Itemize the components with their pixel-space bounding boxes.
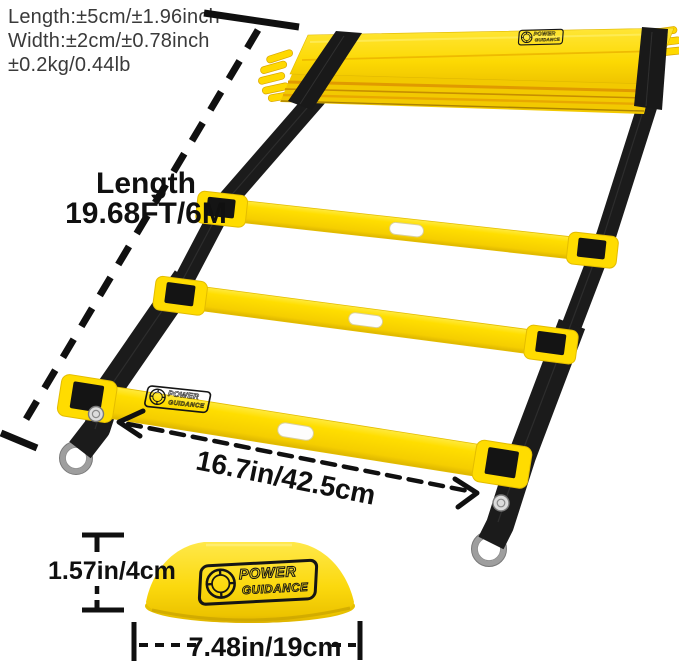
cone-height-label: 1.57in/4cm bbox=[48, 557, 176, 585]
rung-2 bbox=[152, 276, 579, 365]
product-dimension-diagram: Length:±5cm/±1.96inch Width:±2cm/±0.78in… bbox=[0, 0, 679, 663]
length-dimension-line bbox=[1, 13, 299, 448]
tolerance-specs: Length:±5cm/±1.96inch Width:±2cm/±0.78in… bbox=[8, 6, 220, 76]
length-label: Length 19.68FT/6M bbox=[65, 167, 227, 230]
tolerance-length-text: Length:±5cm/±1.96inch bbox=[8, 6, 220, 28]
brand-line2: GUIDANCE bbox=[535, 37, 561, 43]
strap-window bbox=[577, 238, 607, 260]
strap-window bbox=[164, 282, 195, 307]
length-dim-tick-bottom bbox=[1, 433, 37, 448]
arrowhead-right bbox=[455, 479, 477, 507]
length-label-value: 19.68FT/6M bbox=[65, 197, 227, 230]
rung-1 bbox=[195, 191, 619, 269]
tolerance-width-text: Width:±2cm/±0.78inch bbox=[8, 30, 210, 52]
brand-line1: POWER bbox=[238, 564, 296, 583]
folded-rung-stack: POWER GUIDANCE bbox=[258, 26, 679, 114]
tolerance-weight-text: ±0.2kg/0.44lb bbox=[8, 54, 131, 76]
cone-width-label: 7.48in/19cm bbox=[188, 632, 341, 662]
diagram-canvas: Length:±5cm/±1.96inch Width:±2cm/±0.78in… bbox=[0, 0, 679, 663]
length-label-title: Length bbox=[96, 167, 196, 200]
disc-cone: POWER GUIDANCE bbox=[145, 542, 355, 623]
rivet-left bbox=[89, 407, 104, 422]
strap-window bbox=[484, 447, 519, 479]
rivet-right bbox=[493, 495, 509, 511]
strap-window bbox=[535, 331, 566, 356]
